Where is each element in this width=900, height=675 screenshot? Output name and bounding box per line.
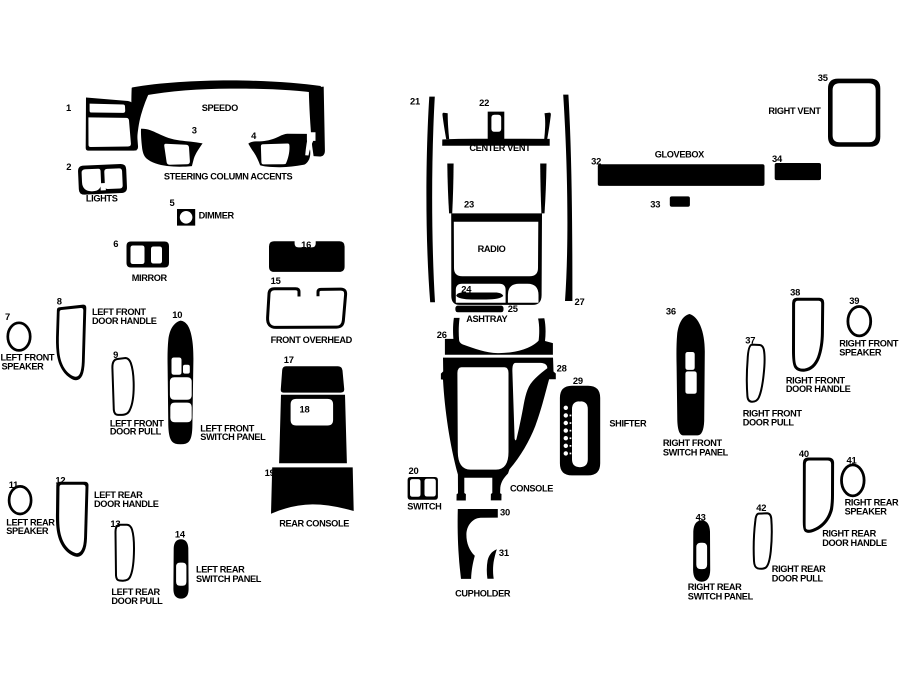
svg-text:SWITCH PANEL: SWITCH PANEL (200, 432, 266, 442)
svg-text:SPEAKER: SPEAKER (839, 347, 882, 357)
svg-text:CONSOLE: CONSOLE (510, 484, 553, 494)
svg-text:SWITCH: SWITCH (407, 502, 442, 512)
svg-text:SPEAKER: SPEAKER (6, 526, 49, 536)
svg-text:29: 29 (573, 375, 583, 386)
svg-text:DOOR PULL: DOOR PULL (111, 596, 163, 606)
svg-text:DOOR HANDLE: DOOR HANDLE (92, 316, 157, 326)
svg-text:3: 3 (192, 124, 197, 135)
svg-text:11: 11 (9, 479, 19, 490)
svg-text:33: 33 (650, 199, 660, 210)
svg-text:SHIFTER: SHIFTER (609, 419, 647, 429)
svg-text:31: 31 (499, 547, 509, 558)
svg-text:39: 39 (849, 295, 859, 306)
svg-text:24: 24 (461, 283, 472, 294)
svg-text:35: 35 (818, 72, 828, 83)
svg-text:15: 15 (271, 275, 281, 286)
svg-text:7: 7 (5, 311, 10, 322)
svg-text:34: 34 (772, 153, 783, 164)
svg-text:41: 41 (847, 454, 857, 465)
svg-text:CENTER VENT: CENTER VENT (469, 143, 531, 153)
svg-text:DOOR HANDLE: DOOR HANDLE (94, 499, 159, 509)
svg-text:SPEAKER: SPEAKER (845, 507, 888, 517)
svg-text:9: 9 (113, 349, 118, 360)
svg-text:DOOR PULL: DOOR PULL (772, 574, 824, 584)
svg-text:12: 12 (55, 474, 65, 485)
svg-text:GLOVEBOX: GLOVEBOX (655, 150, 705, 160)
svg-text:16: 16 (301, 239, 311, 250)
svg-text:DIMMER: DIMMER (199, 211, 235, 221)
svg-text:32: 32 (591, 156, 601, 167)
svg-text:13: 13 (110, 518, 120, 529)
svg-text:MIRROR: MIRROR (132, 273, 168, 283)
svg-text:6: 6 (113, 238, 118, 249)
svg-text:SWITCH PANEL: SWITCH PANEL (688, 591, 754, 601)
svg-text:36: 36 (666, 306, 676, 317)
svg-text:27: 27 (575, 296, 585, 307)
svg-text:26: 26 (437, 329, 447, 340)
svg-text:8: 8 (57, 295, 62, 306)
svg-text:30: 30 (500, 507, 510, 518)
svg-text:22: 22 (479, 97, 489, 108)
svg-text:14: 14 (175, 528, 186, 539)
svg-text:1: 1 (66, 102, 71, 113)
svg-text:DOOR HANDLE: DOOR HANDLE (786, 384, 851, 394)
svg-text:ASHTRAY: ASHTRAY (466, 314, 507, 324)
svg-text:STEERING COLUMN ACCENTS: STEERING COLUMN ACCENTS (164, 172, 293, 182)
svg-text:17: 17 (284, 354, 294, 365)
svg-text:SWITCH PANEL: SWITCH PANEL (196, 574, 262, 584)
svg-text:28: 28 (557, 363, 567, 374)
svg-text:10: 10 (172, 309, 182, 320)
svg-text:LIGHTS: LIGHTS (86, 194, 118, 204)
svg-text:REAR CONSOLE: REAR CONSOLE (279, 519, 349, 529)
svg-text:37: 37 (745, 334, 755, 345)
svg-text:19: 19 (265, 467, 275, 478)
svg-text:DOOR PULL: DOOR PULL (743, 418, 795, 428)
svg-text:38: 38 (790, 286, 800, 297)
svg-text:43: 43 (696, 511, 706, 522)
svg-text:SPEAKER: SPEAKER (2, 362, 45, 372)
svg-text:DOOR PULL: DOOR PULL (110, 427, 162, 437)
svg-text:21: 21 (410, 96, 420, 107)
svg-text:SPEEDO: SPEEDO (202, 103, 238, 113)
svg-text:25: 25 (508, 303, 518, 314)
svg-text:40: 40 (799, 448, 809, 459)
svg-text:20: 20 (409, 465, 419, 476)
svg-text:5: 5 (170, 197, 175, 208)
svg-text:RIGHT VENT: RIGHT VENT (768, 106, 821, 116)
svg-text:23: 23 (464, 198, 474, 209)
svg-text:42: 42 (756, 502, 766, 513)
svg-text:CUPHOLDER: CUPHOLDER (455, 589, 511, 599)
svg-text:2: 2 (66, 161, 71, 172)
svg-text:SWITCH PANEL: SWITCH PANEL (663, 448, 729, 458)
svg-text:FRONT OVERHEAD: FRONT OVERHEAD (271, 335, 353, 345)
svg-text:RADIO: RADIO (478, 244, 506, 254)
svg-text:DOOR HANDLE: DOOR HANDLE (822, 538, 887, 548)
svg-text:18: 18 (300, 404, 310, 415)
